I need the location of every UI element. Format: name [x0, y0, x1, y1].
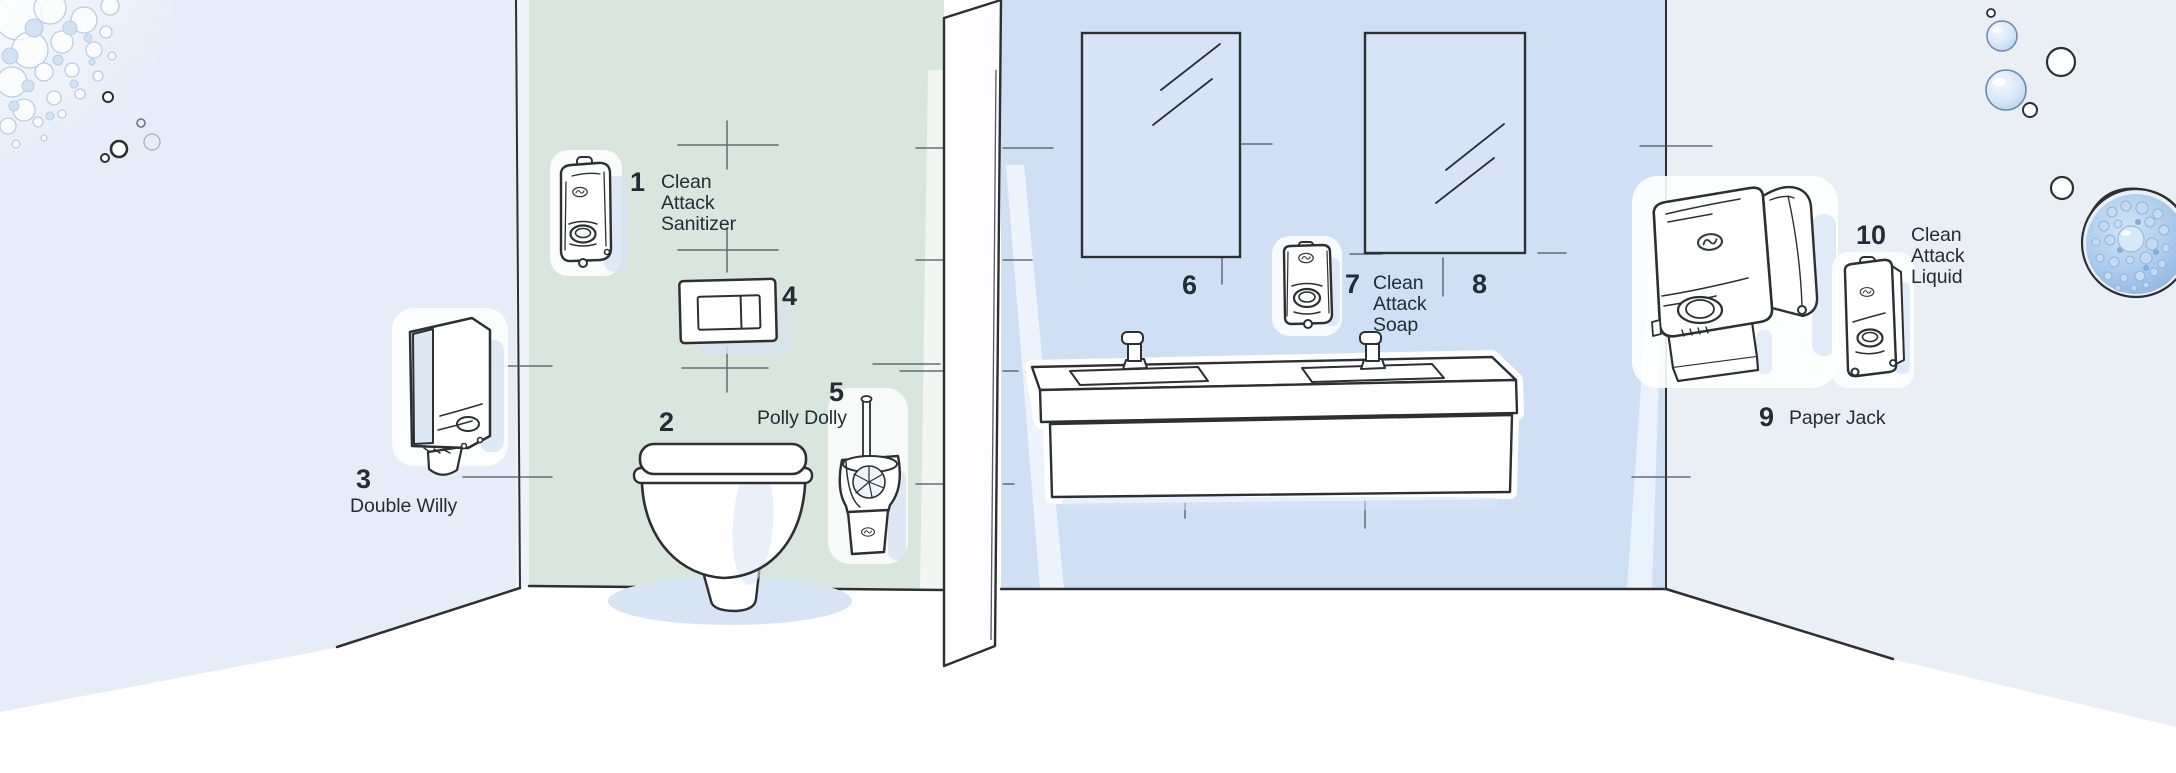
product-label-10-name: Clean Attack Liquid: [1911, 225, 1981, 288]
product-label-6-number: 6: [1182, 272, 1197, 299]
product-label-5-name: Polly Dolly: [757, 408, 847, 429]
product-label-5-number: 5: [829, 379, 844, 406]
product-label-9-number: 9: [1759, 404, 1774, 431]
product-label-4-number: 4: [782, 283, 797, 310]
foam-ball-right: [2082, 189, 2176, 297]
product-label-3-number: 3: [356, 466, 371, 493]
sink-vanity: [1032, 357, 1517, 510]
soap-dispenser: [1272, 236, 1342, 336]
divider-wall: [944, 0, 1001, 666]
product-label-8-number: 8: [1472, 271, 1487, 298]
sanitizer-dispenser: [550, 150, 628, 276]
product-label-7-name: Clean Attack Soap: [1373, 273, 1443, 336]
toilet-roll-dispenser: [392, 308, 508, 475]
washroom-illustration: 1 Clean Attack Sanitizer 2 3 Double Will…: [0, 0, 2176, 773]
product-label-1-number: 1: [630, 169, 645, 196]
liquid-soap-dispenser: [1832, 252, 1914, 388]
product-label-2-number: 2: [659, 409, 674, 436]
product-label-7-number: 7: [1345, 271, 1360, 298]
mirror-left: [1082, 33, 1240, 257]
product-label-3-name: Double Willy: [350, 496, 457, 517]
product-label-9-name: Paper Jack: [1789, 408, 1886, 429]
scene-artwork: [0, 0, 2176, 773]
product-label-1-name: Clean Attack Sanitizer: [661, 172, 753, 235]
product-label-10-number: 10: [1856, 222, 1886, 249]
paper-towel-dispenser: [1632, 176, 1838, 388]
mirror-right: [1365, 33, 1525, 253]
